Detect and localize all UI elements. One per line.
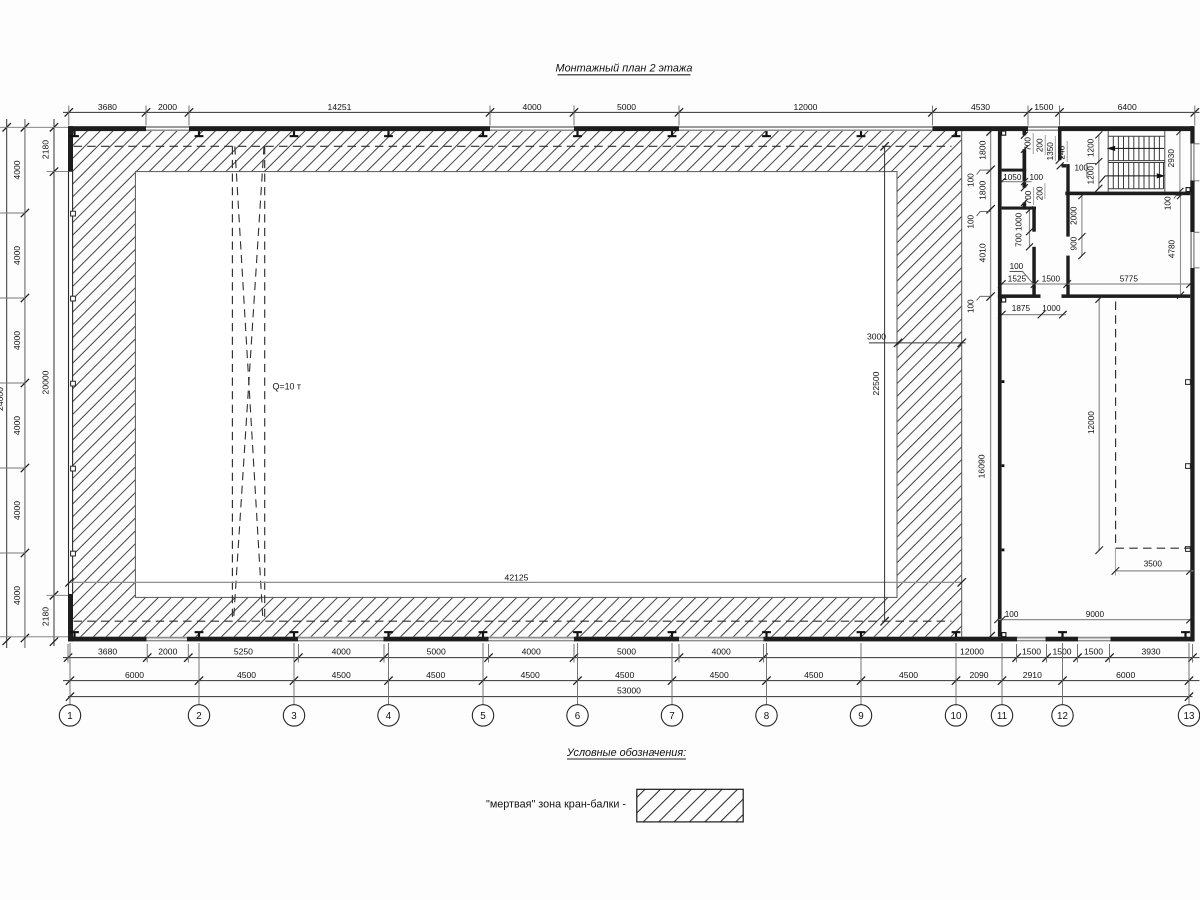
svg-text:2090: 2090 [969,670,988,680]
svg-text:22500: 22500 [871,371,881,395]
svg-text:2180: 2180 [40,607,50,626]
svg-text:11: 11 [997,711,1007,722]
svg-text:1500: 1500 [1042,275,1061,284]
svg-text:4000: 4000 [12,416,22,435]
svg-text:100: 100 [1005,610,1019,619]
svg-text:4500: 4500 [710,670,729,680]
svg-text:"мертвая" зона кран-балки -: "мертвая" зона кран-балки - [486,799,626,811]
svg-text:1000: 1000 [1042,304,1061,313]
svg-text:4000: 4000 [12,501,22,520]
svg-text:4500: 4500 [804,670,823,680]
svg-text:2910: 2910 [1023,670,1042,680]
svg-text:4500: 4500 [426,670,445,680]
svg-text:6000: 6000 [125,670,144,680]
svg-text:3500: 3500 [1144,560,1163,569]
svg-text:5000: 5000 [617,102,636,112]
svg-text:4000: 4000 [522,647,541,657]
svg-text:700: 700 [1015,233,1024,247]
svg-text:14251: 14251 [328,102,352,112]
svg-text:4000: 4000 [522,102,541,112]
svg-text:100: 100 [1029,173,1043,182]
svg-text:6400: 6400 [1118,102,1137,112]
svg-text:4500: 4500 [237,670,256,680]
svg-text:2: 2 [196,711,201,722]
svg-text:9: 9 [858,711,863,722]
svg-text:2180: 2180 [40,140,50,159]
svg-text:4500: 4500 [521,670,540,680]
svg-text:200: 200 [1035,186,1044,200]
svg-text:3: 3 [291,711,297,722]
svg-text:5250: 5250 [234,647,253,657]
svg-text:200: 200 [1036,138,1045,152]
svg-text:Монтажный план 2 этажа: Монтажный план 2 этажа [556,63,693,75]
svg-text:4000: 4000 [12,586,22,605]
svg-text:Условные обозначения:: Условные обозначения: [566,747,686,759]
svg-text:100: 100 [1164,196,1173,210]
svg-text:12: 12 [1057,711,1068,722]
svg-text:1525: 1525 [1008,275,1027,284]
svg-text:12000: 12000 [1087,411,1096,434]
svg-text:4530: 4530 [971,102,990,112]
svg-text:100: 100 [966,173,975,187]
svg-text:7: 7 [669,711,674,722]
svg-text:53000: 53000 [617,685,641,695]
svg-text:8: 8 [764,711,770,722]
svg-text:12000: 12000 [794,102,818,112]
svg-text:4780: 4780 [1168,239,1177,258]
svg-text:1350: 1350 [1046,142,1055,161]
svg-text:5000: 5000 [427,647,446,657]
svg-text:3680: 3680 [98,647,117,657]
svg-text:1500: 1500 [1084,647,1103,657]
svg-text:100: 100 [1010,262,1024,271]
svg-text:2000: 2000 [158,647,177,657]
svg-text:1875: 1875 [1012,304,1031,313]
svg-text:4000: 4000 [12,246,22,265]
svg-text:16090: 16090 [977,454,987,478]
svg-text:1: 1 [67,711,72,722]
svg-text:4000: 4000 [332,647,351,657]
svg-text:12000: 12000 [960,647,984,657]
svg-text:9000: 9000 [1086,610,1105,619]
svg-text:3680: 3680 [98,102,117,112]
svg-text:100: 100 [966,299,975,313]
svg-text:700: 700 [1024,190,1033,204]
svg-text:4500: 4500 [899,670,918,680]
svg-text:1500: 1500 [1022,647,1041,657]
svg-text:20000: 20000 [40,370,50,394]
svg-text:1050: 1050 [1003,173,1022,182]
svg-text:13: 13 [1184,711,1195,722]
svg-text:4500: 4500 [615,670,634,680]
svg-text:100: 100 [966,214,975,228]
svg-text:2930: 2930 [1167,149,1176,168]
svg-text:1800: 1800 [977,140,987,159]
svg-text:1800: 1800 [977,181,987,200]
svg-text:900: 900 [1070,236,1079,250]
svg-text:4500: 4500 [332,670,351,680]
svg-text:2000: 2000 [1070,206,1079,225]
svg-text:6000: 6000 [1116,670,1135,680]
svg-text:3000: 3000 [867,332,886,342]
svg-text:42125: 42125 [505,572,529,582]
svg-text:1500: 1500 [1034,102,1053,112]
svg-text:5: 5 [480,711,486,722]
svg-text:4000: 4000 [712,647,731,657]
svg-text:10: 10 [951,711,962,722]
svg-text:5775: 5775 [1120,275,1139,284]
svg-text:24000: 24000 [0,387,5,411]
svg-text:Q=10 т: Q=10 т [273,381,302,391]
svg-text:4000: 4000 [12,160,22,179]
svg-text:6: 6 [575,711,581,722]
svg-text:1200: 1200 [1086,138,1095,157]
svg-text:3930: 3930 [1141,647,1160,657]
svg-text:2000: 2000 [158,102,177,112]
svg-text:4010: 4010 [977,243,987,262]
svg-text:1000: 1000 [1015,212,1024,231]
svg-text:5000: 5000 [617,647,636,657]
svg-text:4000: 4000 [12,331,22,350]
svg-text:4: 4 [386,711,392,722]
